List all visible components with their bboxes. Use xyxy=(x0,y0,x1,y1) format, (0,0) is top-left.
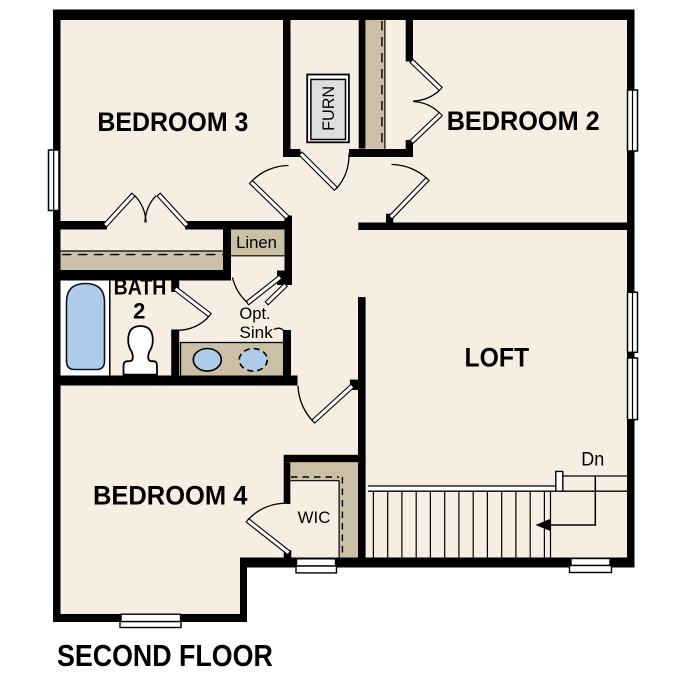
svg-text:Opt.: Opt. xyxy=(239,304,270,323)
svg-text:Linen: Linen xyxy=(236,234,277,252)
svg-text:BEDROOM 4: BEDROOM 4 xyxy=(93,481,248,511)
svg-text:SECOND FLOOR: SECOND FLOOR xyxy=(57,638,273,673)
svg-text:BEDROOM 2: BEDROOM 2 xyxy=(447,106,600,136)
svg-text:WIC: WIC xyxy=(298,509,331,527)
svg-text:Sink: Sink xyxy=(239,323,273,342)
svg-text:BEDROOM 3: BEDROOM 3 xyxy=(97,107,248,137)
svg-text:LOFT: LOFT xyxy=(465,343,530,373)
svg-text:BATH: BATH xyxy=(114,274,167,299)
svg-text:2: 2 xyxy=(133,298,145,323)
svg-text:FURN: FURN xyxy=(319,86,338,131)
svg-text:Dn: Dn xyxy=(581,448,604,470)
